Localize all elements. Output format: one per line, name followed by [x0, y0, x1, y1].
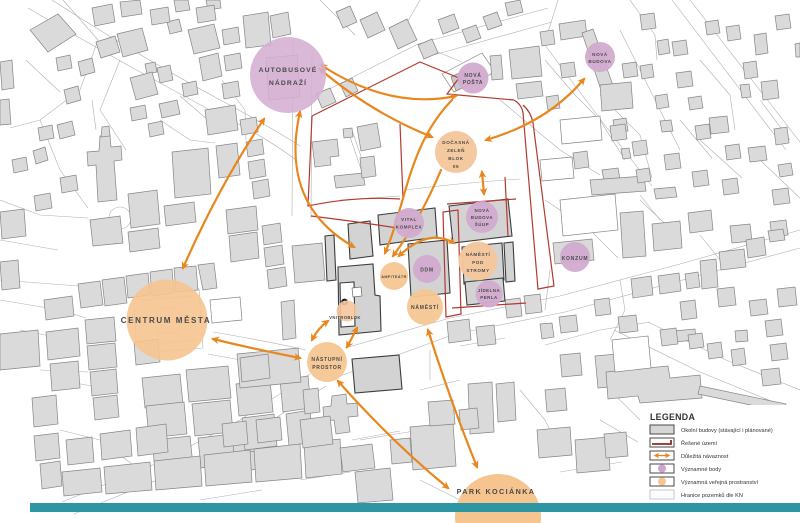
svg-text:Důležitá návaznost: Důležitá návaznost: [681, 453, 729, 460]
svg-text:JÍDELNA: JÍDELNA: [478, 288, 501, 293]
svg-text:PARK KOCIÁNKA: PARK KOCIÁNKA: [457, 487, 536, 496]
svg-text:BUDOVA: BUDOVA: [471, 215, 494, 220]
svg-text:PERLA: PERLA: [480, 295, 498, 300]
svg-text:NÁSTUPNÍ: NÁSTUPNÍ: [311, 355, 342, 363]
svg-text:PROSTOR: PROSTOR: [312, 365, 342, 371]
svg-text:Hranice pozemků dle KN: Hranice pozemků dle KN: [681, 492, 743, 499]
svg-text:Řešené území: Řešené území: [681, 439, 718, 447]
svg-text:NÁMĚSTÍ: NÁMĚSTÍ: [466, 250, 491, 257]
svg-text:Významná veřejná prostranství: Významná veřejná prostranství: [681, 480, 759, 486]
svg-text:ŠÚUP: ŠÚUP: [475, 222, 490, 227]
svg-text:NOVÁ: NOVÁ: [592, 51, 608, 57]
svg-text:DOČASNÁ: DOČASNÁ: [442, 139, 470, 145]
svg-text:STROMY: STROMY: [466, 268, 489, 273]
svg-text:AMFITEÁTR: AMFITEÁTR: [381, 274, 407, 279]
svg-text:AUTOBUSOVÉ: AUTOBUSOVÉ: [259, 65, 318, 74]
svg-text:LEGENDA: LEGENDA: [650, 412, 695, 422]
svg-text:KOMPLEX: KOMPLEX: [396, 225, 422, 230]
svg-text:CENTRUM MĚSTA: CENTRUM MĚSTA: [121, 316, 211, 325]
svg-text:NÁMĚSTÍ: NÁMĚSTÍ: [411, 303, 439, 311]
svg-text:POD: POD: [472, 260, 484, 265]
svg-text:05: 05: [453, 164, 459, 169]
svg-text:BUDOVA: BUDOVA: [588, 59, 611, 64]
svg-text:Okolní budovy (stávající i plá: Okolní budovy (stávající i plánované): [681, 428, 773, 434]
svg-text:NOVÁ: NOVÁ: [464, 72, 481, 79]
svg-text:NÁDRAŽÍ: NÁDRAŽÍ: [269, 78, 307, 87]
svg-text:NOVÁ: NOVÁ: [474, 208, 489, 213]
svg-text:VITAL: VITAL: [401, 217, 417, 222]
svg-text:KONZUM: KONZUM: [562, 256, 589, 262]
svg-text:BLOK: BLOK: [448, 156, 463, 161]
svg-text:ZELEŇ: ZELEŇ: [447, 146, 465, 153]
svg-text:DDM: DDM: [420, 268, 434, 274]
svg-text:VNITROBLOK: VNITROBLOK: [329, 315, 361, 320]
svg-text:POŠTA: POŠTA: [463, 78, 483, 86]
svg-text:Významné body: Významné body: [681, 467, 721, 473]
